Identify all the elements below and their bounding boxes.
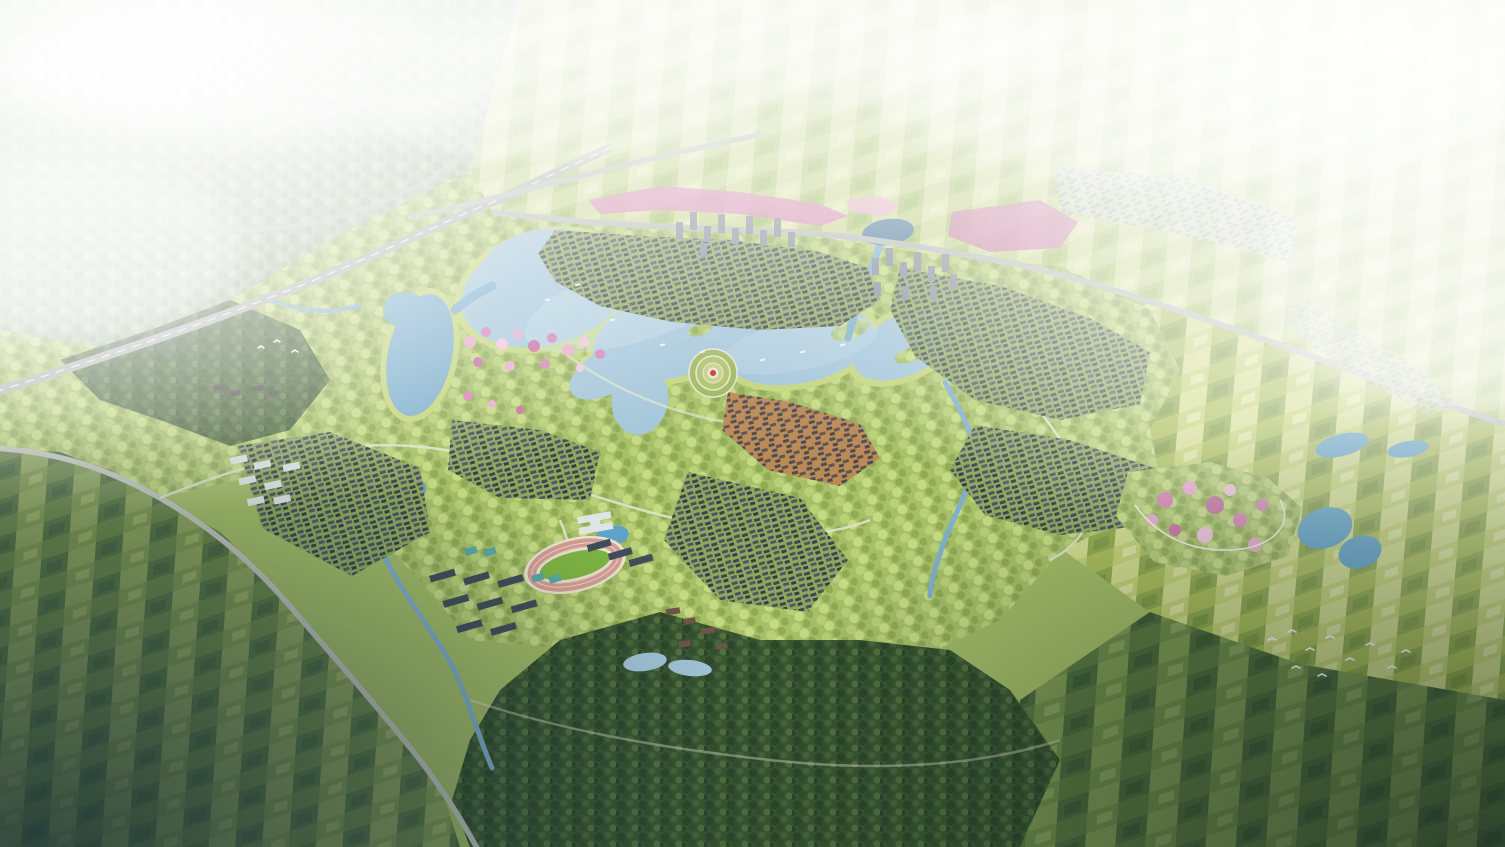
atmosphere-overlays <box>0 0 1505 847</box>
aerial-masterplan-rendering <box>0 0 1505 847</box>
shade-bottom-right <box>0 0 1505 847</box>
rendering-canvas <box>0 0 1505 847</box>
